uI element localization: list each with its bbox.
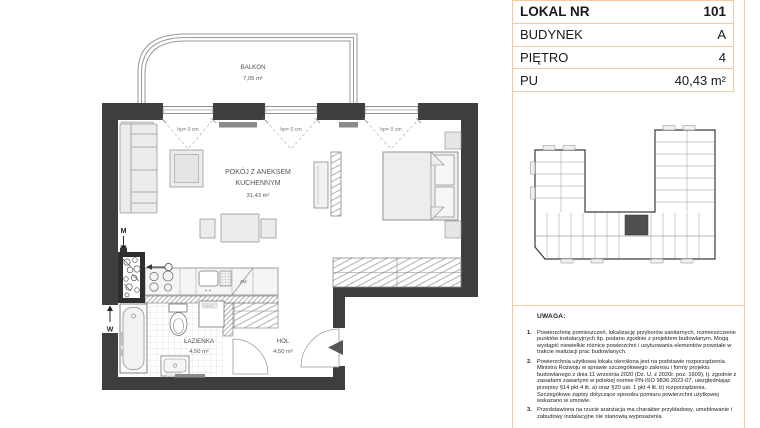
- washing-machine: [199, 301, 224, 327]
- svg-text:BALKON: BALKON: [240, 64, 265, 71]
- svg-text:31,43 m²: 31,43 m²: [247, 193, 270, 199]
- unit-card: LOKAL NR 101 BUDYNEK A PIĘTRO 4 PU 40,43…: [513, 0, 734, 92]
- window-3: [365, 103, 418, 149]
- balcony-label: BALKON 7,05 m²: [240, 64, 265, 82]
- unit-card-row-pietro: PIĘTRO 4: [513, 47, 733, 70]
- svg-text:M: M: [121, 228, 127, 235]
- toilet: [169, 304, 187, 336]
- washbasin: [161, 356, 189, 376]
- hall-wardrobe: [234, 303, 278, 328]
- unit-card-row-lokal: LOKAL NR 101: [513, 1, 733, 24]
- info-panel: LOKAL NR 101 BUDYNEK A PIĘTRO 4 PU 40,43…: [512, 0, 745, 428]
- window-2: [265, 103, 317, 149]
- unit-card-row-pu: PU 40,43 m²: [513, 69, 733, 92]
- disclaimer: UWAGA: 1. Powierzchnię pomieszczeń, loka…: [527, 313, 738, 423]
- svg-text:W: W: [107, 327, 114, 334]
- svg-text:4,50 m²: 4,50 m²: [273, 349, 293, 355]
- budynek-label: BUDYNEK: [520, 27, 583, 42]
- windows: hp= 0 cm hp= 0 cm hp= 0 cm: [161, 103, 421, 149]
- bathroom: ŁAZIENKA 4,50 m²: [118, 301, 233, 378]
- bathroom-door: [233, 339, 268, 374]
- svg-text:POKÓJ Z ANEKSEM: POKÓJ Z ANEKSEM: [225, 167, 291, 176]
- pietro-label: PIĘTRO: [520, 50, 568, 65]
- bedroom-wardrobe: [333, 258, 461, 287]
- pietro-value: 4: [719, 50, 726, 65]
- bathtub: [120, 304, 147, 373]
- sill-height-label-1: hp= 0 cm: [177, 127, 198, 133]
- tv-unit: [314, 152, 341, 216]
- disclaimer-item: 1. Powierzchnię pomieszczeń, lokalizację…: [527, 330, 738, 356]
- floor-plan-sheet: BALKON 7,05 m²: [0, 0, 760, 428]
- building-site-plan: [521, 112, 721, 272]
- sill-height-label-3: hp= 0 cm: [380, 127, 401, 133]
- bed: [383, 152, 458, 220]
- unit-card-row-budynek: BUDYNEK A: [513, 24, 733, 47]
- lokal-nr-label: LOKAL NR: [520, 4, 590, 19]
- threshold: [175, 374, 205, 378]
- pu-label: PU: [520, 73, 538, 88]
- disclaimer-item: 3. Przedstawiona na rzucie aranżacja ma …: [527, 407, 738, 420]
- pu-value: 40,43 m²: [675, 73, 726, 88]
- svg-text:4,50 m²: 4,50 m²: [189, 349, 209, 355]
- sofa: [120, 124, 157, 213]
- lokal-nr-value: 101: [703, 4, 726, 19]
- armchair: [170, 150, 203, 187]
- kitchen-counter: ZM: [145, 263, 278, 295]
- svg-text:7,05 m²: 7,05 m²: [243, 76, 263, 82]
- svg-text:KUCHENNYM: KUCHENNYM: [235, 180, 280, 187]
- disclaimer-heading: UWAGA:: [537, 313, 738, 321]
- window-1: [163, 103, 213, 149]
- disclaimer-item: 2. Powierzchnia użytkowa lokalu określon…: [527, 359, 738, 405]
- budynek-value: A: [717, 27, 726, 42]
- svg-text:ŁAZIENKA: ŁAZIENKA: [184, 338, 215, 345]
- riser-w: W: [102, 305, 118, 334]
- riser-m: M: [120, 228, 127, 252]
- installation-shaft: [121, 255, 143, 301]
- svg-text:HOL: HOL: [277, 338, 290, 345]
- entrance-door: [301, 329, 343, 367]
- sill-height-label-2: hp= 0 cm: [280, 127, 301, 133]
- apartment-floor-plan: BALKON 7,05 m²: [0, 0, 512, 428]
- highlighted-unit: [625, 215, 648, 235]
- living-room-label: POKÓJ Z ANEKSEM KUCHENNYM 31,43 m²: [225, 167, 291, 199]
- dining-set: [200, 214, 276, 242]
- svg-text:ZM: ZM: [240, 279, 247, 284]
- panel-divider: [513, 305, 744, 306]
